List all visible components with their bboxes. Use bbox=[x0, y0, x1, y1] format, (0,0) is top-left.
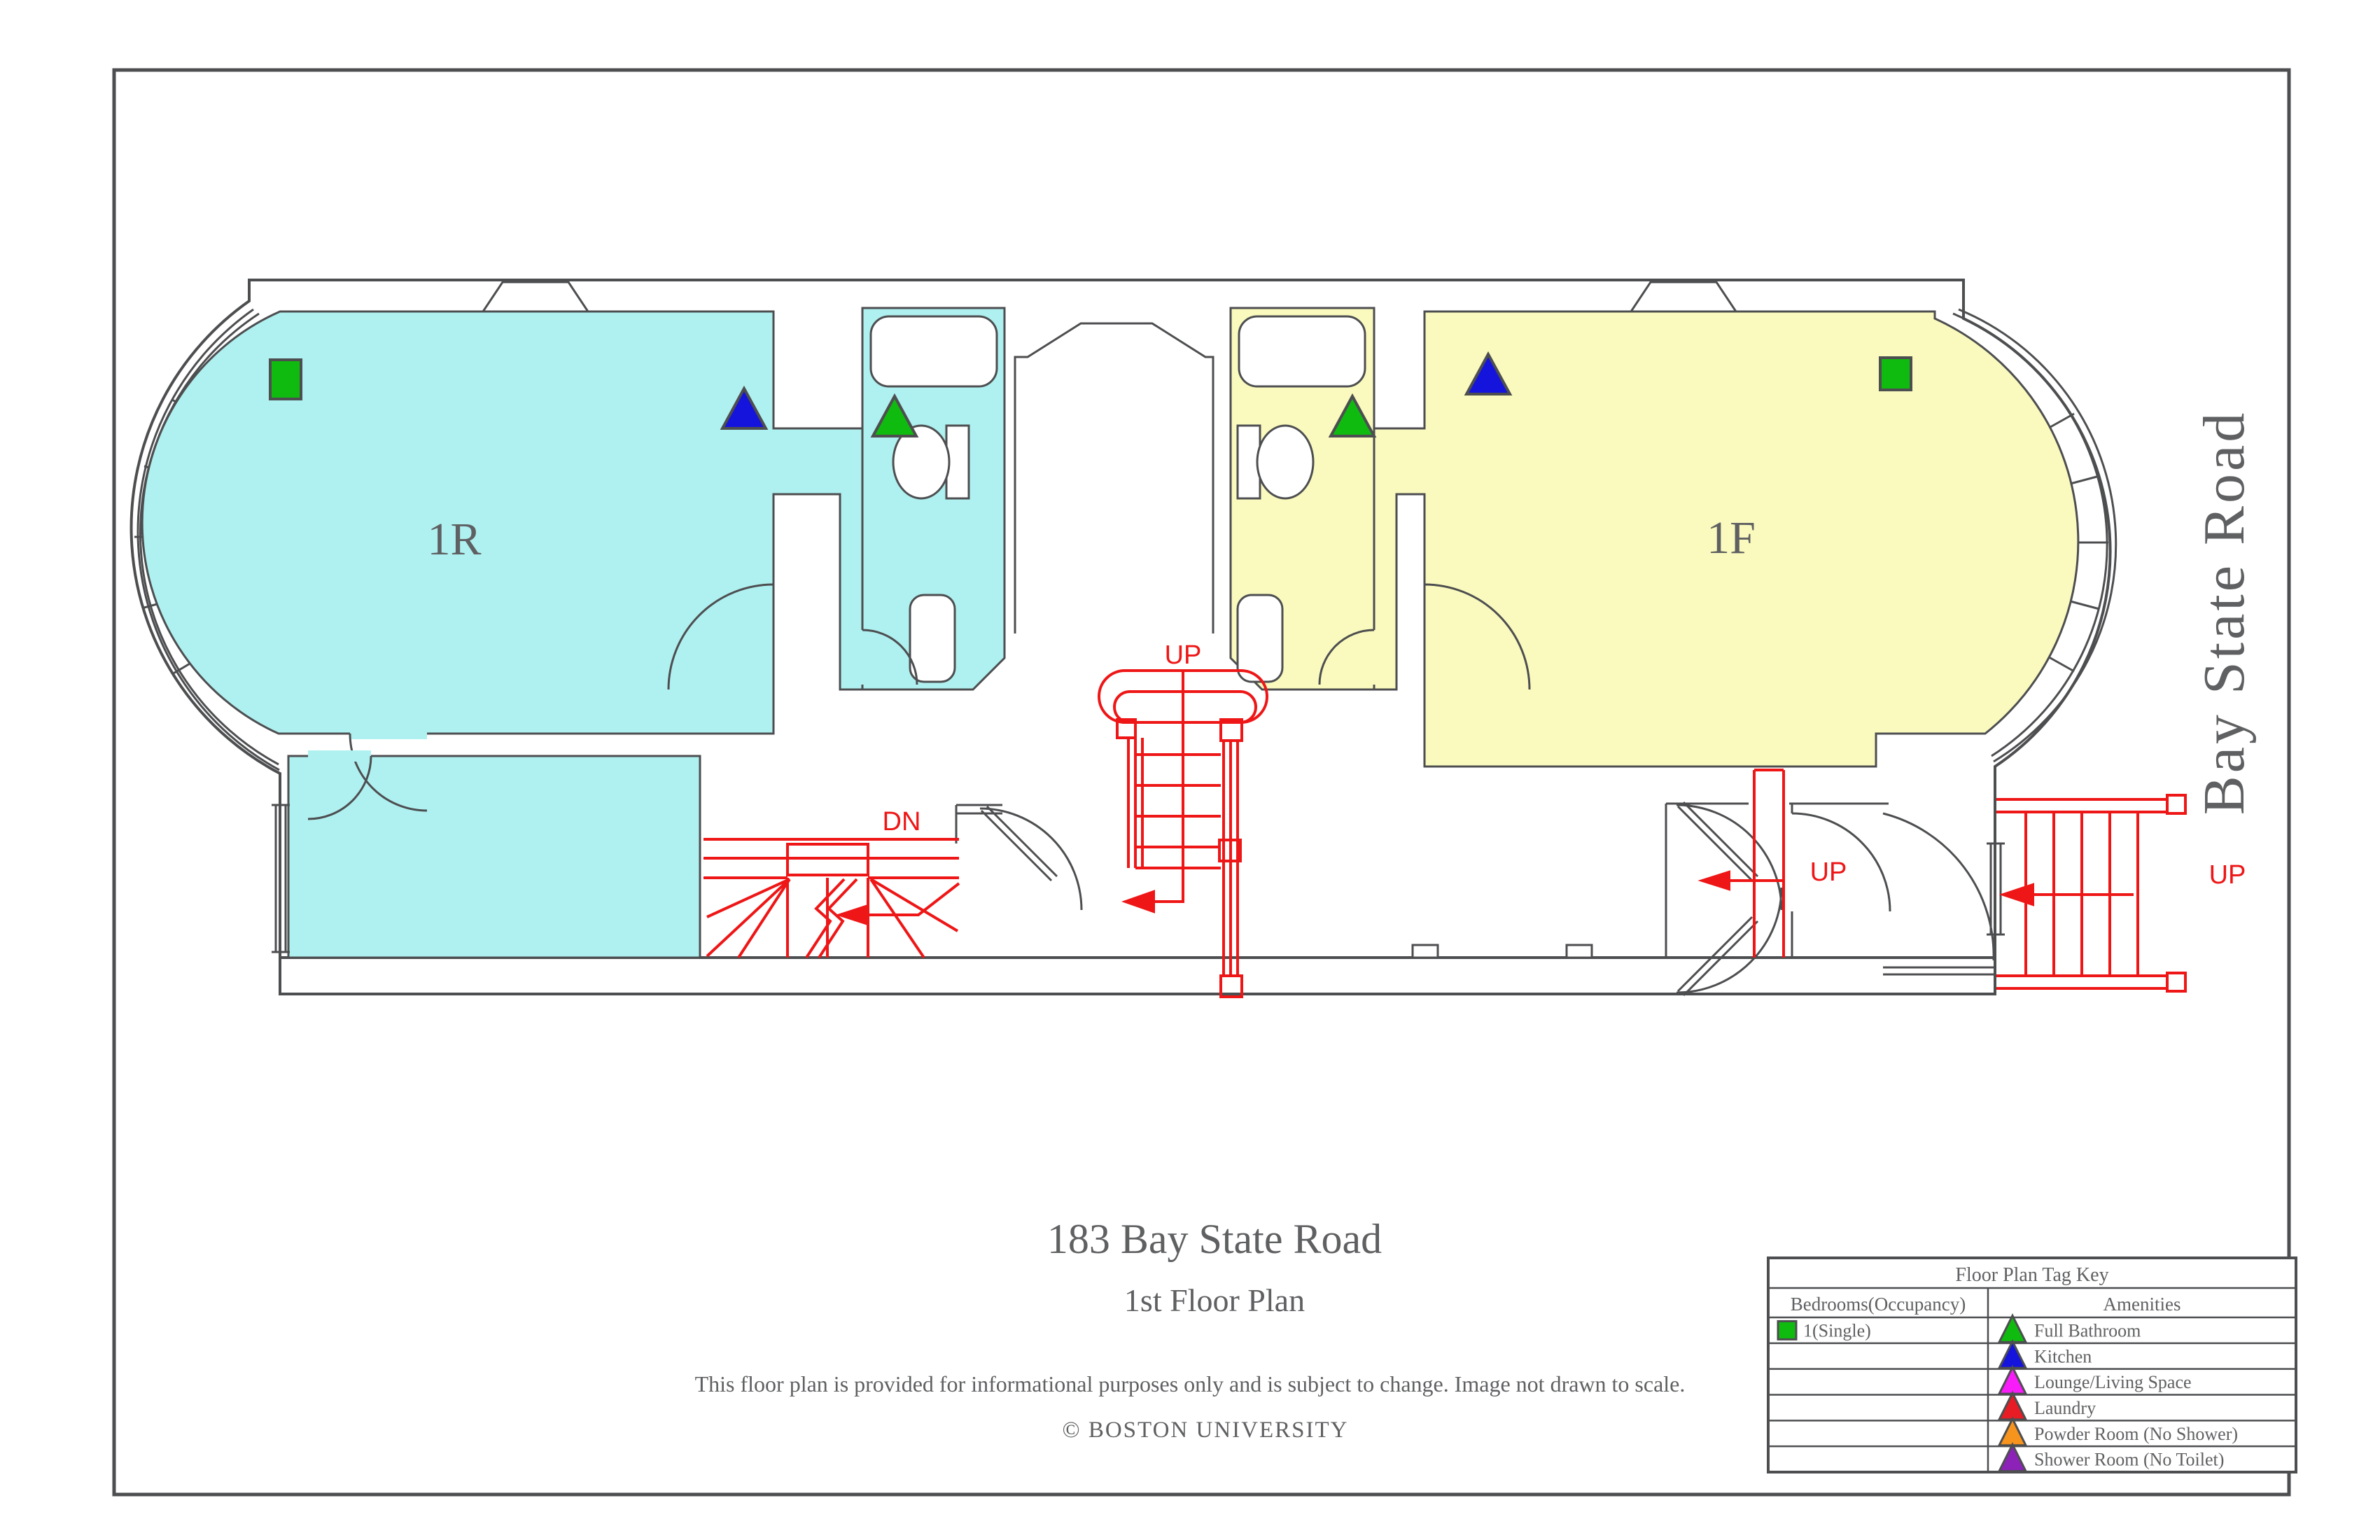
sink-icon bbox=[910, 595, 955, 682]
legend-title: Floor Plan Tag Key bbox=[1955, 1264, 2108, 1286]
page-title: 183 Bay State Road bbox=[1047, 1216, 1382, 1262]
legend-label: Powder Room (No Shower) bbox=[2034, 1424, 2238, 1444]
bathtub-icon bbox=[871, 316, 997, 386]
wall-pilaster bbox=[1567, 945, 1592, 958]
street-label: Bay State Road bbox=[2192, 410, 2257, 815]
stair-direction-label: DN bbox=[883, 807, 921, 836]
stair-direction-label: UP bbox=[1165, 640, 1202, 670]
legend-label: Shower Room (No Toilet) bbox=[2034, 1450, 2224, 1470]
stair-direction-label: UP bbox=[1810, 857, 1847, 887]
unit-label-1r: 1R bbox=[427, 514, 481, 565]
legend-table: Floor Plan Tag Key Bedrooms(Occupancy) A… bbox=[1768, 1258, 2296, 1472]
legend-label: 1(Single) bbox=[1803, 1320, 1871, 1340]
legend-label: Lounge/Living Space bbox=[2034, 1372, 2192, 1392]
page-subtitle: 1st Floor Plan bbox=[1124, 1282, 1305, 1318]
legend-label: Laundry bbox=[2034, 1398, 2096, 1418]
legend-col-amenities: Amenities bbox=[2103, 1294, 2181, 1315]
single-bedroom-tag-square bbox=[270, 360, 301, 399]
room-1r-main bbox=[142, 311, 862, 734]
toilet-icon bbox=[1257, 426, 1313, 498]
sink-icon bbox=[1238, 595, 1282, 682]
legend-col-bedrooms: Bedrooms(Occupancy) bbox=[1791, 1294, 1966, 1315]
floor-plan-page: UPDNUPUP 1R 1F Bay State Road 183 Bay St… bbox=[0, 0, 2380, 1540]
alcove-1f bbox=[1631, 282, 1736, 311]
legend-marker-single-bedroom bbox=[1778, 1321, 1796, 1339]
copyright-text: © BOSTON UNIVERSITY bbox=[1063, 1417, 1349, 1443]
single-bedroom-tag-square bbox=[1880, 358, 1911, 390]
disclaimer-text: This floor plan is provided for informat… bbox=[695, 1371, 1686, 1396]
alcove-1r bbox=[483, 282, 588, 311]
bathtub-icon bbox=[1239, 316, 1365, 386]
wall-pilaster bbox=[1413, 945, 1438, 958]
stair-direction-label: UP bbox=[2209, 860, 2246, 890]
legend-label: Full Bathroom bbox=[2034, 1320, 2141, 1340]
unit-label-1f: 1F bbox=[1707, 512, 1756, 563]
room-1r-lower bbox=[288, 756, 700, 958]
legend-label: Kitchen bbox=[2034, 1346, 2092, 1366]
